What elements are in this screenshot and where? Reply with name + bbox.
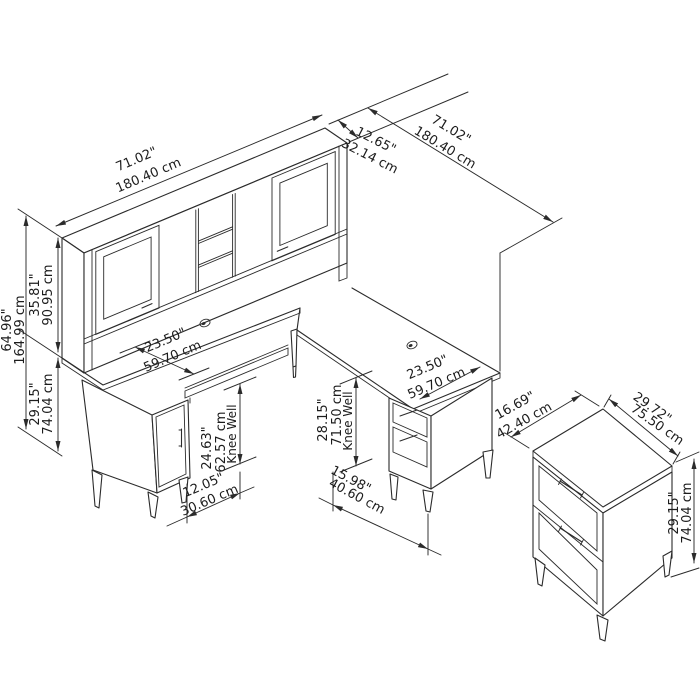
keyboard-tray-body bbox=[185, 348, 288, 398]
ext-hutch-depth-1 bbox=[329, 74, 448, 124]
corner-leg-post bbox=[291, 329, 297, 367]
dim-tail-right-kw-1 bbox=[319, 498, 333, 505]
file-cabinet-right-leg bbox=[663, 551, 672, 577]
left-pedestal-back-leg bbox=[92, 470, 102, 508]
return-pedestal-corner-leg bbox=[423, 490, 433, 512]
keyboard-tray bbox=[185, 345, 288, 403]
dim-overall-height-cm: 164.99 cm bbox=[13, 295, 28, 364]
dim-tail-left-kw-2 bbox=[240, 487, 254, 493]
ext-file-width-1 bbox=[604, 395, 611, 407]
left-pedestal bbox=[82, 380, 190, 518]
hutch bbox=[62, 128, 347, 373]
corner-leg-foot bbox=[293, 366, 296, 378]
return-pedestal-back-leg bbox=[483, 450, 493, 478]
left-pedestal-front-left-leg bbox=[148, 492, 158, 518]
dim-tail-right-kw-2 bbox=[428, 549, 441, 555]
ext-height-top bbox=[18, 209, 62, 238]
corner-leg bbox=[291, 329, 297, 378]
hutch-left-end-panel bbox=[62, 238, 84, 373]
dim-desk-height-cm: 74.04 cm bbox=[41, 373, 56, 434]
furniture-dimension-diagram: 71.02" 180.40 cm 12.65" 32.14 cm 71.02" … bbox=[0, 0, 700, 700]
ext-file-depth-2 bbox=[575, 391, 599, 406]
dim-right-kneewell-in: 28.15" bbox=[316, 398, 331, 441]
file-cabinet-front-leg bbox=[597, 615, 608, 641]
dim-left-kneewell-label: Knee Well bbox=[225, 404, 239, 463]
dim-left-kneewell-in: 24.63" bbox=[200, 426, 215, 469]
diagram-canvas: 71.02" 180.40 cm 12.65" 32.14 cm 71.02" … bbox=[0, 0, 700, 700]
return-pedestal bbox=[389, 378, 493, 512]
file-cabinet bbox=[533, 409, 672, 641]
return-grommet bbox=[406, 340, 418, 350]
ext-file-height-2 bbox=[671, 568, 699, 577]
dim-file-height-cm: 74.04 cm bbox=[680, 482, 695, 543]
return-pedestal-side bbox=[431, 378, 492, 489]
dim-right-kneewell-label: Knee Well bbox=[341, 391, 355, 450]
ext-overall-depth-seg bbox=[500, 218, 562, 253]
dim-hutch-height-cm: 90.95 cm bbox=[41, 264, 56, 325]
return-pedestal-front bbox=[389, 398, 431, 489]
return-pedestal-front-leg bbox=[390, 474, 398, 500]
